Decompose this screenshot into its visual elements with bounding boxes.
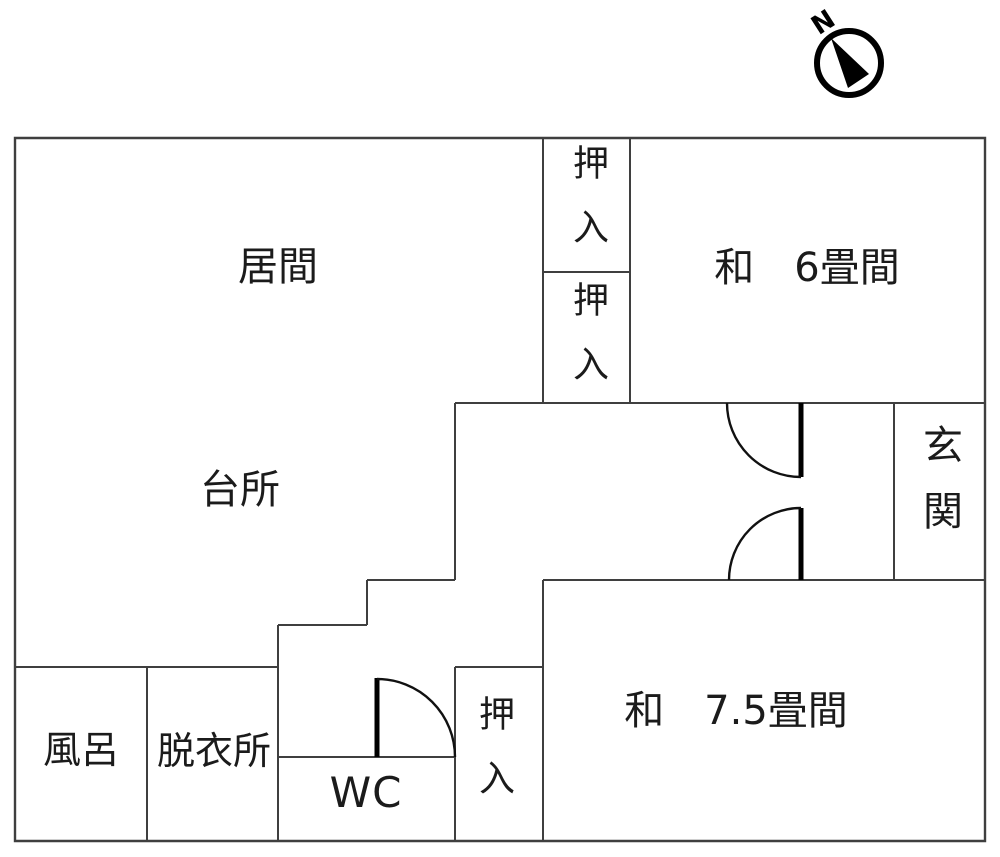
room-label-japanese-6: 和 6畳間 bbox=[714, 248, 899, 288]
room-label-kitchen: 台所 bbox=[200, 470, 280, 510]
room-label-closet-top-lower: 押入 bbox=[569, 281, 605, 409]
room-label-living: 居間 bbox=[238, 247, 318, 287]
hall-door-upper-arc bbox=[727, 403, 801, 477]
room-label-japanese-7-5: 和 7.5畳間 bbox=[624, 691, 848, 731]
room-label-entrance: 玄関 bbox=[919, 424, 959, 556]
hall-door-lower-arc bbox=[729, 508, 801, 580]
room-label-dressing: 脱衣所 bbox=[157, 732, 271, 770]
floor-plan-page: { "compass": { "north_label": "N" }, "ro… bbox=[0, 0, 1000, 857]
room-label-bath: 風呂 bbox=[43, 731, 119, 769]
compass: N bbox=[806, 4, 881, 95]
room-label-wc: WC bbox=[330, 772, 403, 814]
wc-door-arc bbox=[377, 679, 455, 757]
room-label-closet-bottom: 押入 bbox=[475, 695, 511, 823]
room-label-closet-top-upper: 押入 bbox=[569, 144, 605, 272]
